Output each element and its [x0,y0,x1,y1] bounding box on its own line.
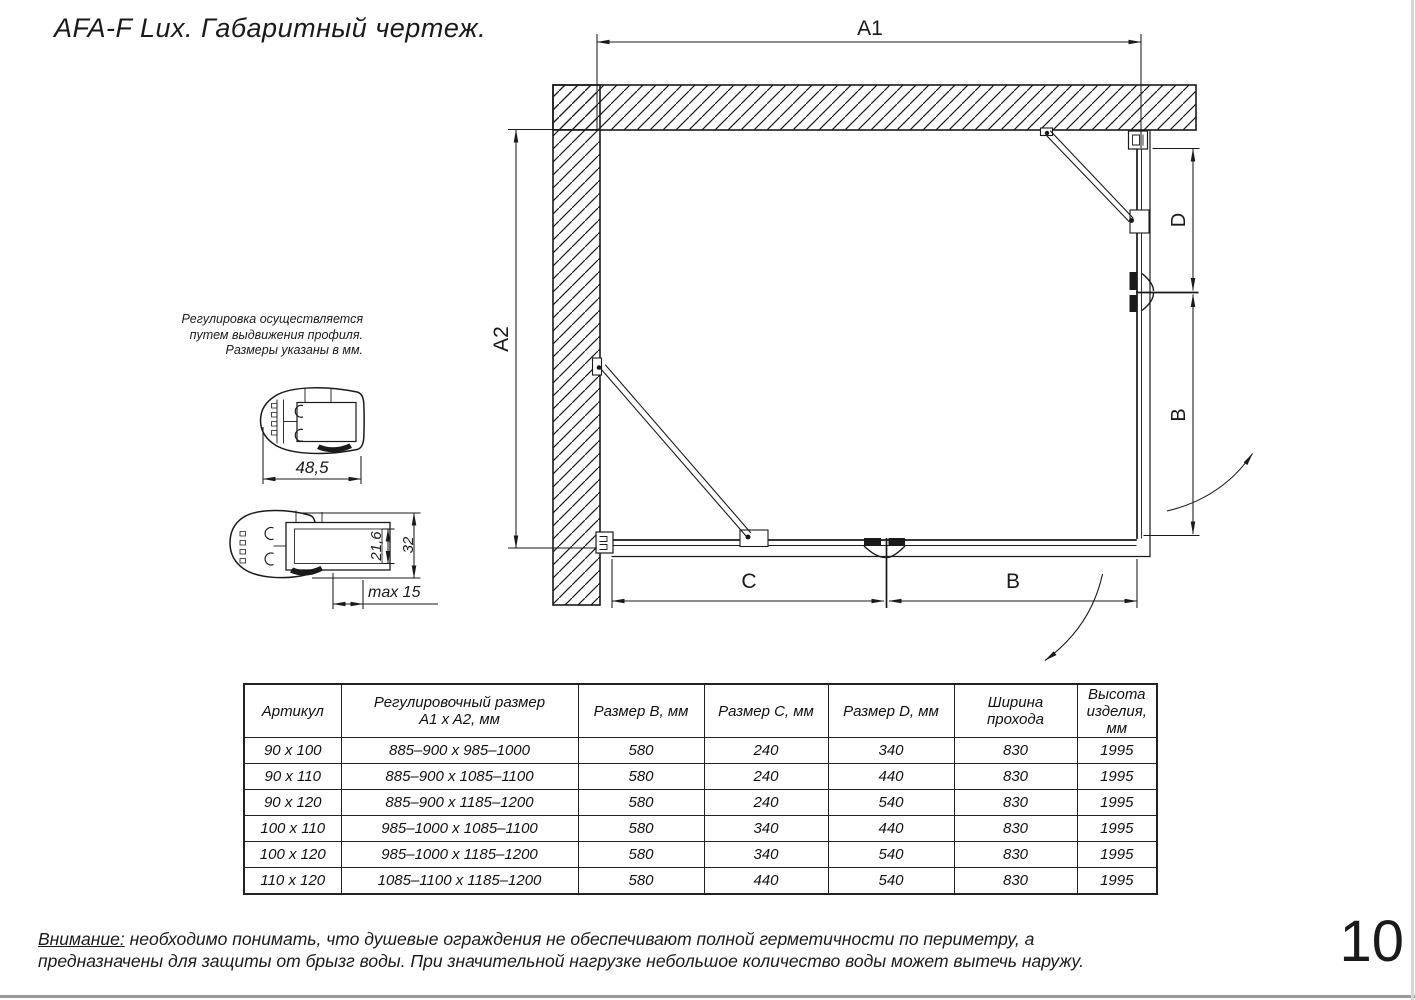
table-cell: 580 [578,764,704,790]
table-row: 100 x 110985–1000 x 1085–110058034044083… [244,816,1157,842]
table-cell: 1995 [1077,842,1157,868]
page-title: AFA-F Lux. Габаритный чертеж. [54,13,486,44]
door-hinges [864,272,1199,608]
adjustment-note-line: Размеры указаны в мм. [175,343,363,359]
dim-label-d-side: D [1162,203,1196,237]
enclosure-glass-and-frame [596,131,1150,557]
adjustment-note-line: путем выдвижения профиля. [175,328,363,344]
table-cell: 90 x 110 [244,764,341,790]
walls [553,85,1196,605]
col-header-pass-width: Ширина прохода [954,684,1077,738]
table-cell: 540 [828,868,954,895]
table-cell: 340 [828,738,954,764]
table-cell: 1995 [1077,790,1157,816]
adjustment-note: Регулировка осуществляется путем выдвиже… [175,312,363,359]
support-braces [593,128,1150,547]
table-row: 90 x 120885–900 x 1185–12005802405408301… [244,790,1157,816]
dim-label-a2: A2 [485,322,519,356]
warning-note: Внимание: необходимо понимать, что душев… [38,929,1156,972]
table-cell: 440 [828,816,954,842]
table-cell: 580 [578,842,704,868]
table-cell: 100 x 110 [244,816,341,842]
table-row: 110 x 1201085–1100 x 1185–12005804405408… [244,868,1157,895]
table-row: 90 x 110885–900 x 1085–11005802404408301… [244,764,1157,790]
table-cell: 540 [828,790,954,816]
table-cell: 830 [954,764,1077,790]
dim-label-profile-width: 48,5 [282,458,342,478]
table-cell: 885–900 x 985–1000 [341,738,578,764]
table-cell: 580 [578,738,704,764]
table-cell: 580 [578,816,704,842]
table-cell: 90 x 100 [244,738,341,764]
table-row: 100 x 120985–1000 x 1185–120058034054083… [244,842,1157,868]
table-cell: 830 [954,790,1077,816]
table-cell: 885–900 x 1085–1100 [341,764,578,790]
table-cell: 340 [704,842,828,868]
table-cell: 110 x 120 [244,868,341,895]
table-cell: 830 [954,842,1077,868]
adjustment-note-line: Регулировка осуществляется [175,312,363,328]
page-right-edge [1411,0,1414,1000]
dim-label-profile-height: 32 [388,525,428,565]
table-cell: 90 x 120 [244,790,341,816]
dim-label-c-front: C [734,569,764,595]
catalog-page: AFA-F Lux. Габаритный чертеж. Регулировк… [0,0,1415,1000]
table-cell: 830 [954,868,1077,895]
table-cell: 440 [828,764,954,790]
col-header-height: Высота изделия, мм [1077,684,1157,738]
table-cell: 1995 [1077,816,1157,842]
warning-body: необходимо понимать, что душевые огражде… [38,929,1084,971]
table-cell: 240 [704,790,828,816]
col-header-article: Артикул [244,684,341,738]
table-header: Артикул Регулировочный размер A1 x A2, м… [244,684,1157,738]
dim-label-b-side: B [1162,398,1196,432]
table-body: 90 x 100885–900 x 985–100058024034083019… [244,738,1157,895]
col-header-size-b: Размер B, мм [578,684,704,738]
table-cell: 100 x 120 [244,842,341,868]
warning-prefix: Внимание: [38,929,125,949]
table-cell: 1995 [1077,764,1157,790]
table-cell: 580 [578,790,704,816]
col-header-adjust-size: Регулировочный размер A1 x A2, мм [341,684,578,738]
dim-label-max-extension: max 15 [368,584,448,602]
table-cell: 885–900 x 1185–1200 [341,790,578,816]
col-header-size-d: Размер D, мм [828,684,954,738]
table-cell: 1995 [1077,738,1157,764]
table-cell: 830 [954,738,1077,764]
dim-label-b-front: B [998,569,1028,595]
size-spec-table: Артикул Регулировочный размер A1 x A2, м… [243,683,1158,895]
table-cell: 985–1000 x 1085–1100 [341,816,578,842]
table-cell: 440 [704,868,828,895]
table-cell: 540 [828,842,954,868]
table-cell: 1995 [1077,868,1157,895]
table-cell: 1085–1100 x 1185–1200 [341,868,578,895]
table-cell: 340 [704,816,828,842]
col-header-size-c: Размер C, мм [704,684,828,738]
table-cell: 985–1000 x 1185–1200 [341,842,578,868]
page-bottom-edge [0,995,1415,998]
table-cell: 580 [578,868,704,895]
table-row: 90 x 100885–900 x 985–100058024034083019… [244,738,1157,764]
table-cell: 240 [704,738,828,764]
table-cell: 830 [954,816,1077,842]
dim-label-a1: A1 [853,16,887,42]
table-cell: 240 [704,764,828,790]
page-number: 10 [1318,908,1404,975]
